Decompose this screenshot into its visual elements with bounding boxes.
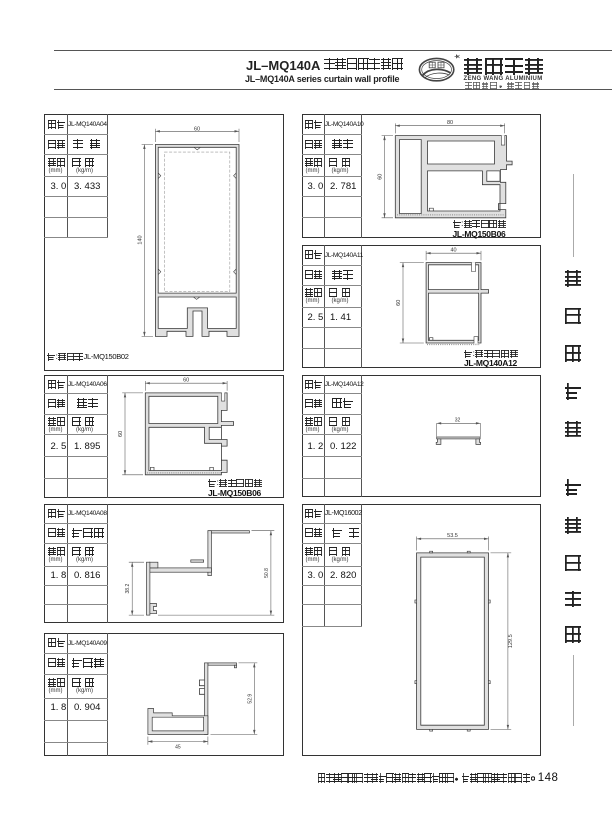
svg-text:50.8: 50.8 xyxy=(264,568,270,578)
svg-text:60: 60 xyxy=(183,377,189,383)
svg-text:60: 60 xyxy=(118,431,124,437)
svg-text:60: 60 xyxy=(378,174,384,180)
svg-text:140: 140 xyxy=(137,235,143,244)
svg-text:40: 40 xyxy=(450,248,456,254)
svg-text:60: 60 xyxy=(396,300,402,306)
svg-text:45: 45 xyxy=(175,744,181,750)
svg-text:38.2: 38.2 xyxy=(125,584,131,594)
svg-text:60: 60 xyxy=(194,127,200,133)
svg-text:52.9: 52.9 xyxy=(247,694,253,704)
svg-text:80: 80 xyxy=(447,120,453,126)
svg-text:129.5: 129.5 xyxy=(508,634,514,648)
svg-text:32: 32 xyxy=(455,418,461,424)
svg-text:53.5: 53.5 xyxy=(447,533,458,539)
